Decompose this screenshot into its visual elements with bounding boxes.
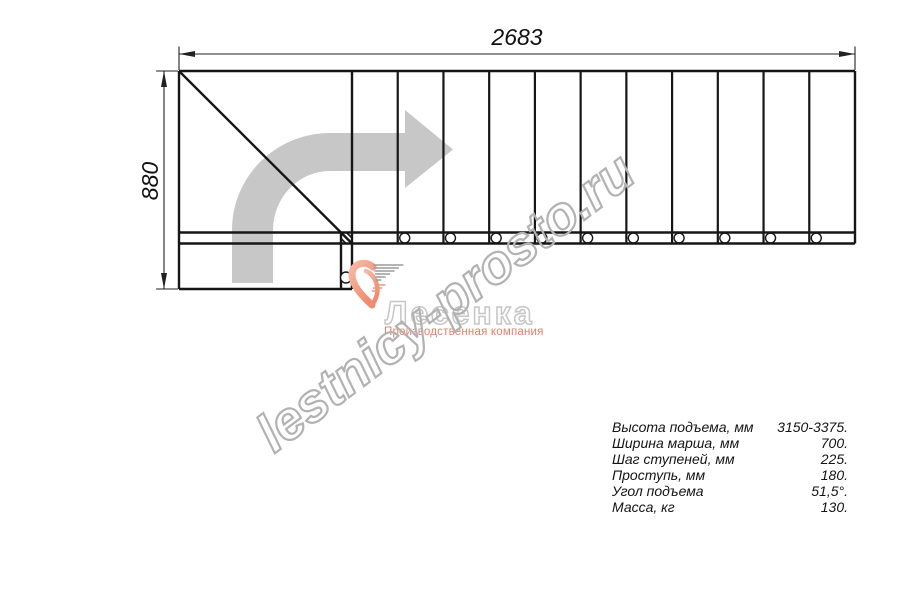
step-lines (398, 71, 810, 244)
tread-bolt (491, 233, 501, 243)
tread-bolt (583, 233, 593, 243)
spec-value: 3150-3375. (777, 419, 848, 435)
spec-label: Ширина марша, мм (612, 435, 739, 451)
spec-row: Ширина марша, мм 700. (612, 435, 848, 451)
tread-bolts (400, 233, 822, 243)
tread-bolt (445, 233, 455, 243)
logo-tagline: Производственная компания (384, 326, 544, 338)
tread-bolt (674, 233, 684, 243)
spec-label: Угол подъема (612, 483, 704, 499)
spec-row: Проступь, мм 180. (612, 467, 848, 483)
tread-bolt (537, 233, 547, 243)
tread-bolt (720, 233, 730, 243)
top-dimension-label: 2683 (490, 24, 542, 50)
spec-label: Высота подъема, мм (612, 419, 754, 435)
tread-bolt (400, 233, 410, 243)
spec-value: 130. (821, 499, 848, 515)
tread-bolt (811, 233, 821, 243)
spec-row: Высота подъема, мм 3150-3375. (612, 419, 848, 435)
spec-row: Угол подъема 51,5°. (612, 483, 848, 499)
spec-value: 51,5°. (811, 483, 848, 499)
tread-bolt (628, 233, 638, 243)
specs-table: Высота подъема, мм 3150-3375. Ширина мар… (612, 419, 848, 515)
spec-value: 700. (821, 435, 848, 451)
spec-label: Масса, кг (612, 499, 675, 515)
spec-row: Масса, кг 130. (612, 499, 848, 515)
stair-plan-drawing: 2683 880 Лесенка Производственная компан… (0, 0, 900, 600)
tread-bolt (766, 233, 776, 243)
direction-arrow (232, 110, 453, 283)
spec-row: Шаг ступеней, мм 225. (612, 451, 848, 467)
spec-label: Шаг ступеней, мм (612, 451, 735, 467)
spec-value: 225. (821, 451, 848, 467)
left-dimension-label: 880 (137, 162, 163, 201)
spec-label: Проступь, мм (612, 467, 705, 483)
spec-value: 180. (821, 467, 848, 483)
